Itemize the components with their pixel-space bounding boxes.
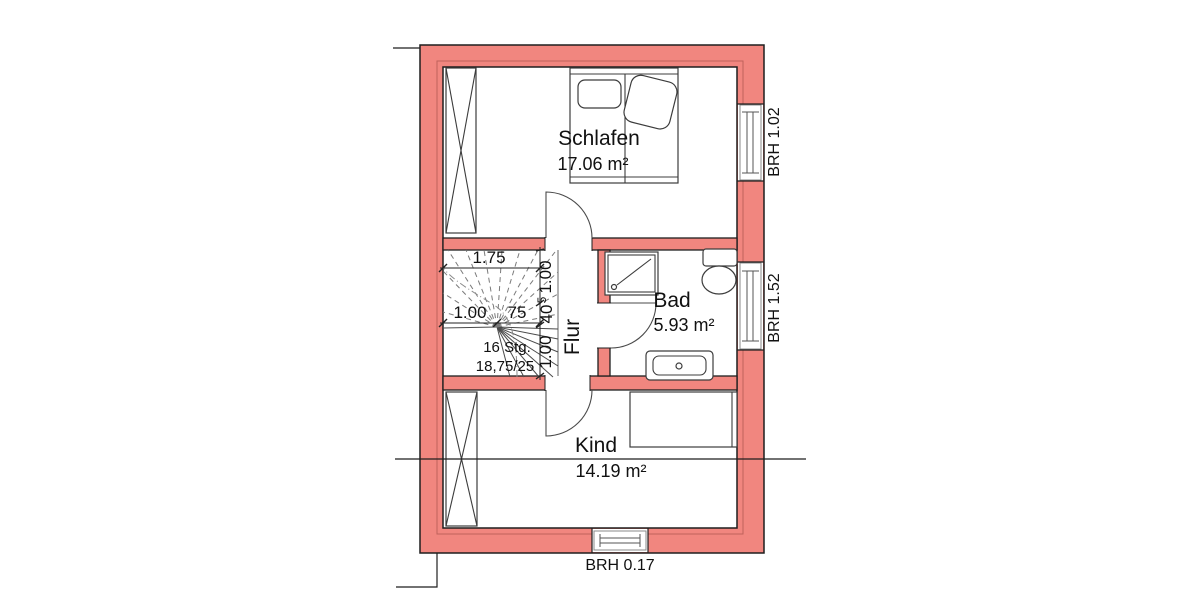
dimension-chain-horizontal-top: 1.75	[439, 248, 544, 272]
bad-door-opening	[596, 303, 612, 348]
brh-label-kind-window: BRH 0.17	[585, 557, 654, 574]
room-label-kind: Kind	[575, 434, 617, 457]
brh-label-schlafen-window: BRH 1.02	[766, 107, 783, 176]
shower-symbol	[605, 252, 658, 295]
room-area-kind: 14.19 m²	[575, 461, 646, 481]
stairs-riser-tread-label: 18,75/25	[476, 358, 534, 375]
stairs-steps-label: 16 Stg.	[483, 339, 531, 356]
floor-plan-canvas: 16 Stg. 18,75/25	[0, 0, 1200, 600]
dim-stair-height-top: 1.00	[536, 260, 555, 293]
toilet-symbol	[702, 249, 737, 294]
dim-stair-width-right: 75	[508, 303, 527, 322]
kind-door-opening	[545, 374, 590, 392]
bad-door-swing	[611, 303, 656, 348]
schlafen-door-opening	[545, 236, 592, 252]
kind-window-symbol	[592, 528, 648, 553]
dimension-chain-horizontal-mid: 1.00 75	[439, 303, 544, 327]
single-bed-symbol	[630, 392, 737, 447]
brh-label-bad-window: BRH 1.52	[766, 273, 783, 342]
kind-door-swing	[546, 390, 592, 436]
floor-plan-drawing: 16 Stg. 18,75/25	[0, 0, 1200, 600]
room-area-bad: 5.93 m²	[653, 315, 714, 335]
dim-stair-width-total: 1.75	[472, 248, 505, 267]
schlafen-window-symbol	[737, 104, 764, 181]
dim-stair-height-mid-sup: 5	[535, 296, 549, 303]
bad-window-symbol	[737, 262, 764, 350]
washbasin-symbol	[646, 351, 713, 380]
dim-stair-width-left: 1.00	[453, 303, 486, 322]
room-label-flur: Flur	[561, 319, 584, 355]
pillow-symbol	[578, 80, 621, 108]
room-label-bad: Bad	[653, 289, 690, 312]
room-label-schlafen: Schlafen	[558, 127, 640, 150]
room-area-schlafen: 17.06 m²	[557, 154, 628, 174]
section-line-bottom-stub	[396, 553, 437, 587]
dim-stair-height-bottom: 1.00	[536, 335, 555, 368]
dim-stair-height-mid: 40	[537, 305, 556, 324]
schlafen-wardrobe-symbol	[446, 68, 476, 233]
schlafen-door-swing	[546, 192, 592, 238]
dimension-chain-vertical: 1.00 40 5 1.00	[535, 247, 556, 380]
